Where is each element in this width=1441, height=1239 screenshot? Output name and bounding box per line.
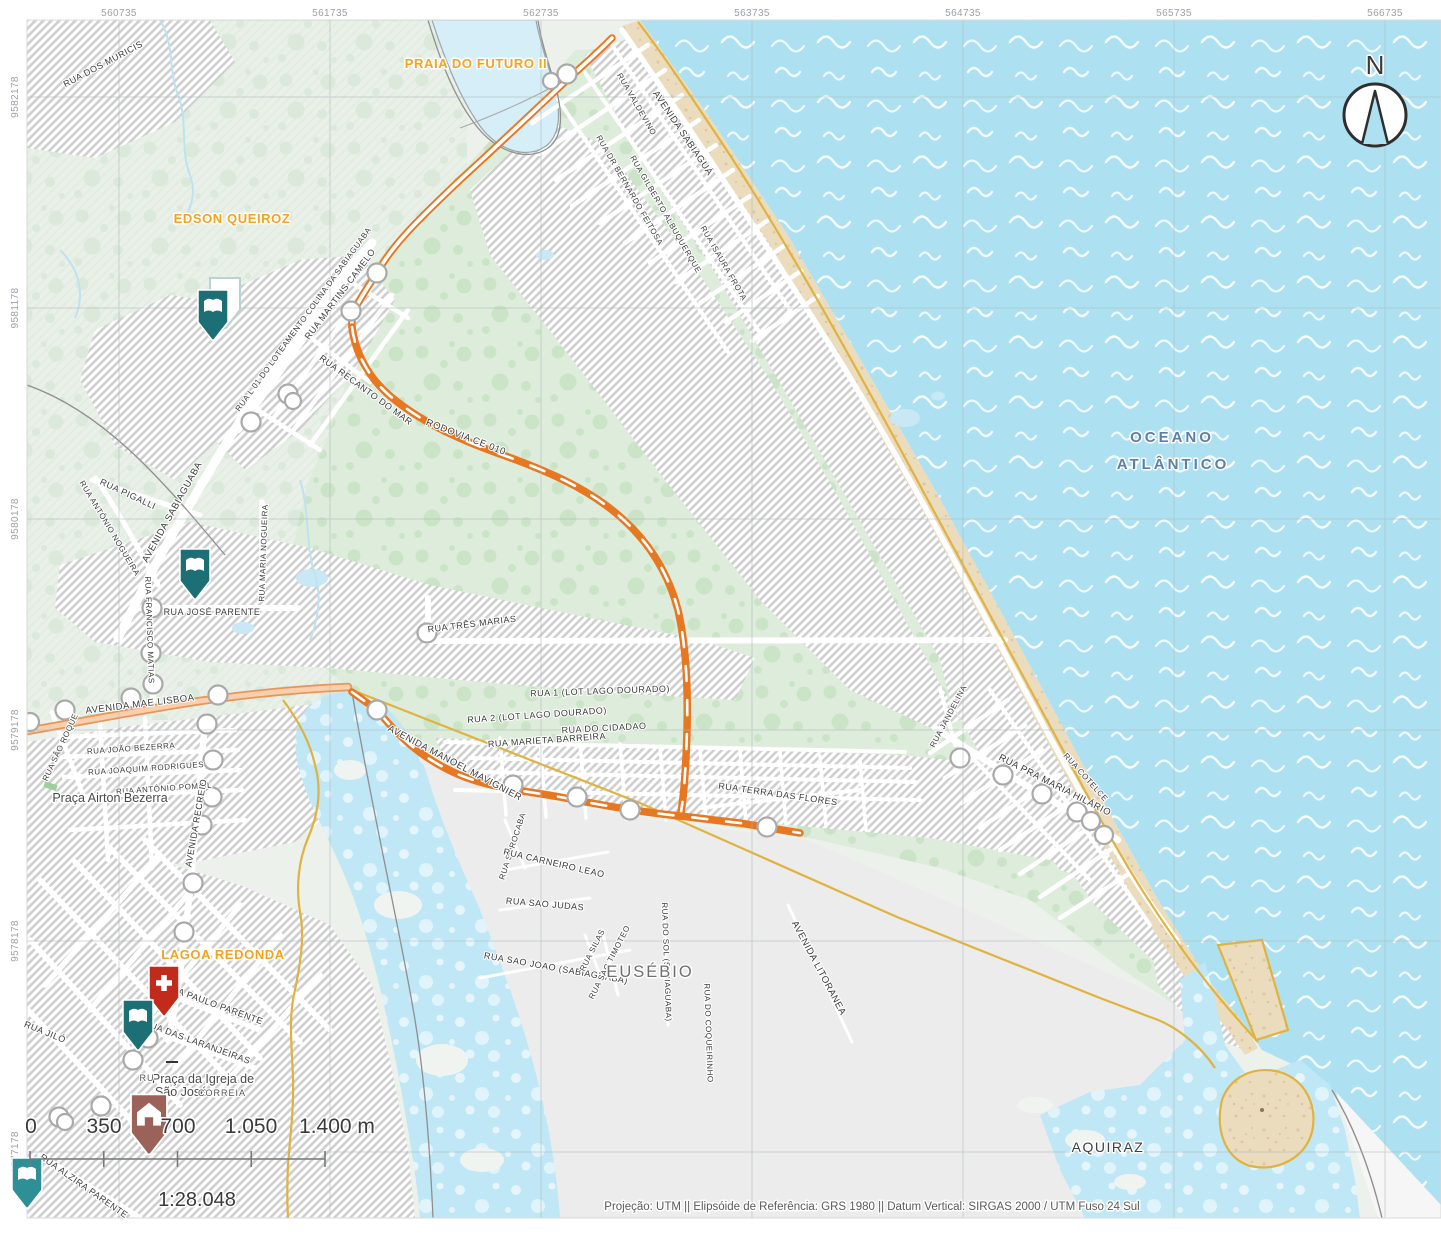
axis-left-3: 9579178 [10, 709, 21, 751]
scale-tick-700: 700 [160, 1115, 195, 1138]
scale-ratio: 1:28.048 [158, 1189, 236, 1211]
axis-top-2: 562735 [523, 8, 559, 19]
axis-top-4: 564735 [945, 8, 981, 19]
scale-tick-1400: 1.400 m [299, 1115, 375, 1138]
street-label-jose-parente: RUA JOSÉ PARENTE [164, 607, 261, 617]
place-label-atlantico: ATLÂNTICO [1117, 455, 1230, 473]
axis-left-4: 9578178 [10, 920, 21, 962]
axis-top-5: 565735 [1156, 8, 1192, 19]
open-book-icon [18, 1167, 36, 1180]
north-letter: N [1366, 50, 1385, 80]
axis-left-2: 9580178 [10, 498, 21, 540]
projection-footer: Projeção: UTM || Elipsóide de Referência… [604, 1201, 1139, 1213]
map-svg: 560735 561735 562735 563735 564735 56573… [0, 0, 1441, 1239]
street-label-fragment-correia: CORREIA [198, 1088, 246, 1098]
axis-top-6: 566735 [1367, 8, 1403, 19]
open-book-icon [204, 299, 222, 312]
axis-left-0: 9582178 [10, 76, 21, 118]
place-label-praia-do-futuro: PRAIA DO FUTURO II [405, 56, 547, 71]
street-label-fragment-ru: RU [140, 1073, 155, 1083]
place-label-praca-airton: Praça Airton Bezerra [52, 791, 167, 805]
scale-tick-0: 0 [25, 1115, 37, 1138]
scale-tick-350: 350 [86, 1115, 121, 1138]
axis-top-3: 563735 [734, 8, 770, 19]
place-label-praca-igreja-1: Praça da Igreja de [152, 1072, 254, 1086]
axis-top-0: 560735 [101, 8, 137, 19]
axis-top-1: 561735 [312, 8, 348, 19]
place-label-eusebio: EUSÉBIO [606, 962, 693, 981]
map-body [21, 20, 1441, 1218]
place-label-lagoa-redonda: LAGOA REDONDA [161, 947, 285, 962]
place-label-aquiraz: AQUIRAZ [1072, 1139, 1145, 1155]
map-canvas: 560735 561735 562735 563735 564735 56573… [0, 0, 1441, 1239]
place-label-edson-queiroz: EDSON QUEIROZ [174, 211, 291, 226]
place-label-oceano: OCEANO [1130, 429, 1214, 446]
scale-tick-1050: 1.050 [225, 1115, 278, 1138]
open-book-icon [129, 1009, 147, 1022]
open-book-icon [186, 558, 204, 571]
axis-left-1: 9581178 [10, 287, 21, 328]
